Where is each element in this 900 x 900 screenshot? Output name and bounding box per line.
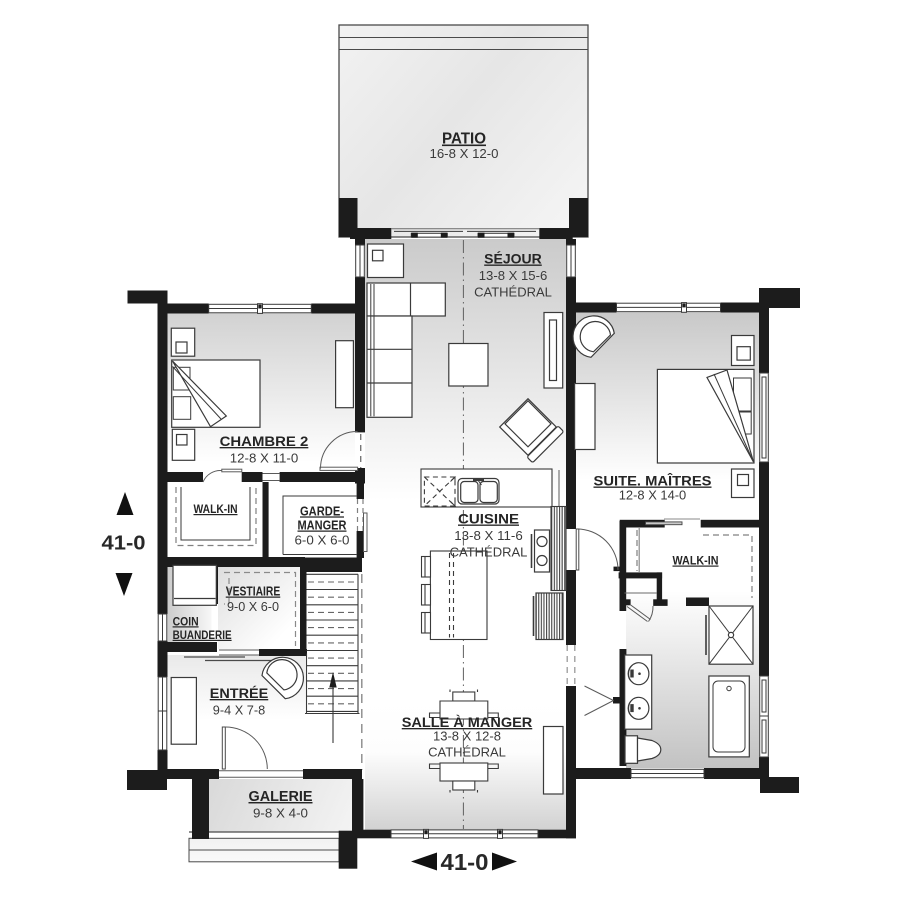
svg-text:ENTRÉE: ENTRÉE xyxy=(210,686,269,701)
svg-text:13-8 X 11-6: 13-8 X 11-6 xyxy=(454,529,523,543)
svg-text:41-0: 41-0 xyxy=(102,532,146,555)
svg-text:VESTIAIRE: VESTIAIRE xyxy=(226,585,281,599)
svg-text:CHAMBRE 2: CHAMBRE 2 xyxy=(220,434,309,449)
svg-text:12-8 X 11-0: 12-8 X 11-0 xyxy=(230,452,299,466)
svg-text:SUITE. MAÎTRES: SUITE. MAÎTRES xyxy=(594,474,712,489)
svg-text:COIN: COIN xyxy=(173,614,199,628)
svg-text:PATIO: PATIO xyxy=(442,131,486,148)
svg-text:MANGER: MANGER xyxy=(298,519,347,533)
svg-text:CATHÉDRAL: CATHÉDRAL xyxy=(474,285,552,300)
svg-text:WALK-IN: WALK-IN xyxy=(194,502,238,516)
svg-text:CATHÉDRAL: CATHÉDRAL xyxy=(428,745,506,760)
svg-text:41-0: 41-0 xyxy=(441,849,489,875)
svg-text:13-8 X 12-8: 13-8 X 12-8 xyxy=(433,730,501,744)
svg-text:16-8 X 12-0: 16-8 X 12-0 xyxy=(430,146,499,161)
svg-text:6-0 X 6-0: 6-0 X 6-0 xyxy=(295,534,350,548)
svg-text:CATHÉDRAL: CATHÉDRAL xyxy=(450,545,528,560)
svg-text:12-8 X 14-0: 12-8 X 14-0 xyxy=(619,489,687,503)
svg-text:CUISINE: CUISINE xyxy=(458,512,519,527)
svg-text:GALERIE: GALERIE xyxy=(249,789,313,805)
svg-text:9-4 X 7-8: 9-4 X 7-8 xyxy=(213,704,266,718)
svg-text:WALK-IN: WALK-IN xyxy=(673,554,719,568)
svg-text:BUANDERIE: BUANDERIE xyxy=(173,628,232,642)
svg-text:9-8 X 4-0: 9-8 X 4-0 xyxy=(253,806,308,821)
svg-text:GARDE-: GARDE- xyxy=(300,504,344,518)
svg-text:SÉJOUR: SÉJOUR xyxy=(484,252,542,267)
svg-text:9-0 X 6-0: 9-0 X 6-0 xyxy=(227,600,279,614)
svg-text:13-8 X 15-6: 13-8 X 15-6 xyxy=(479,269,548,283)
svg-text:SALLE À MANGER: SALLE À MANGER xyxy=(402,715,533,730)
